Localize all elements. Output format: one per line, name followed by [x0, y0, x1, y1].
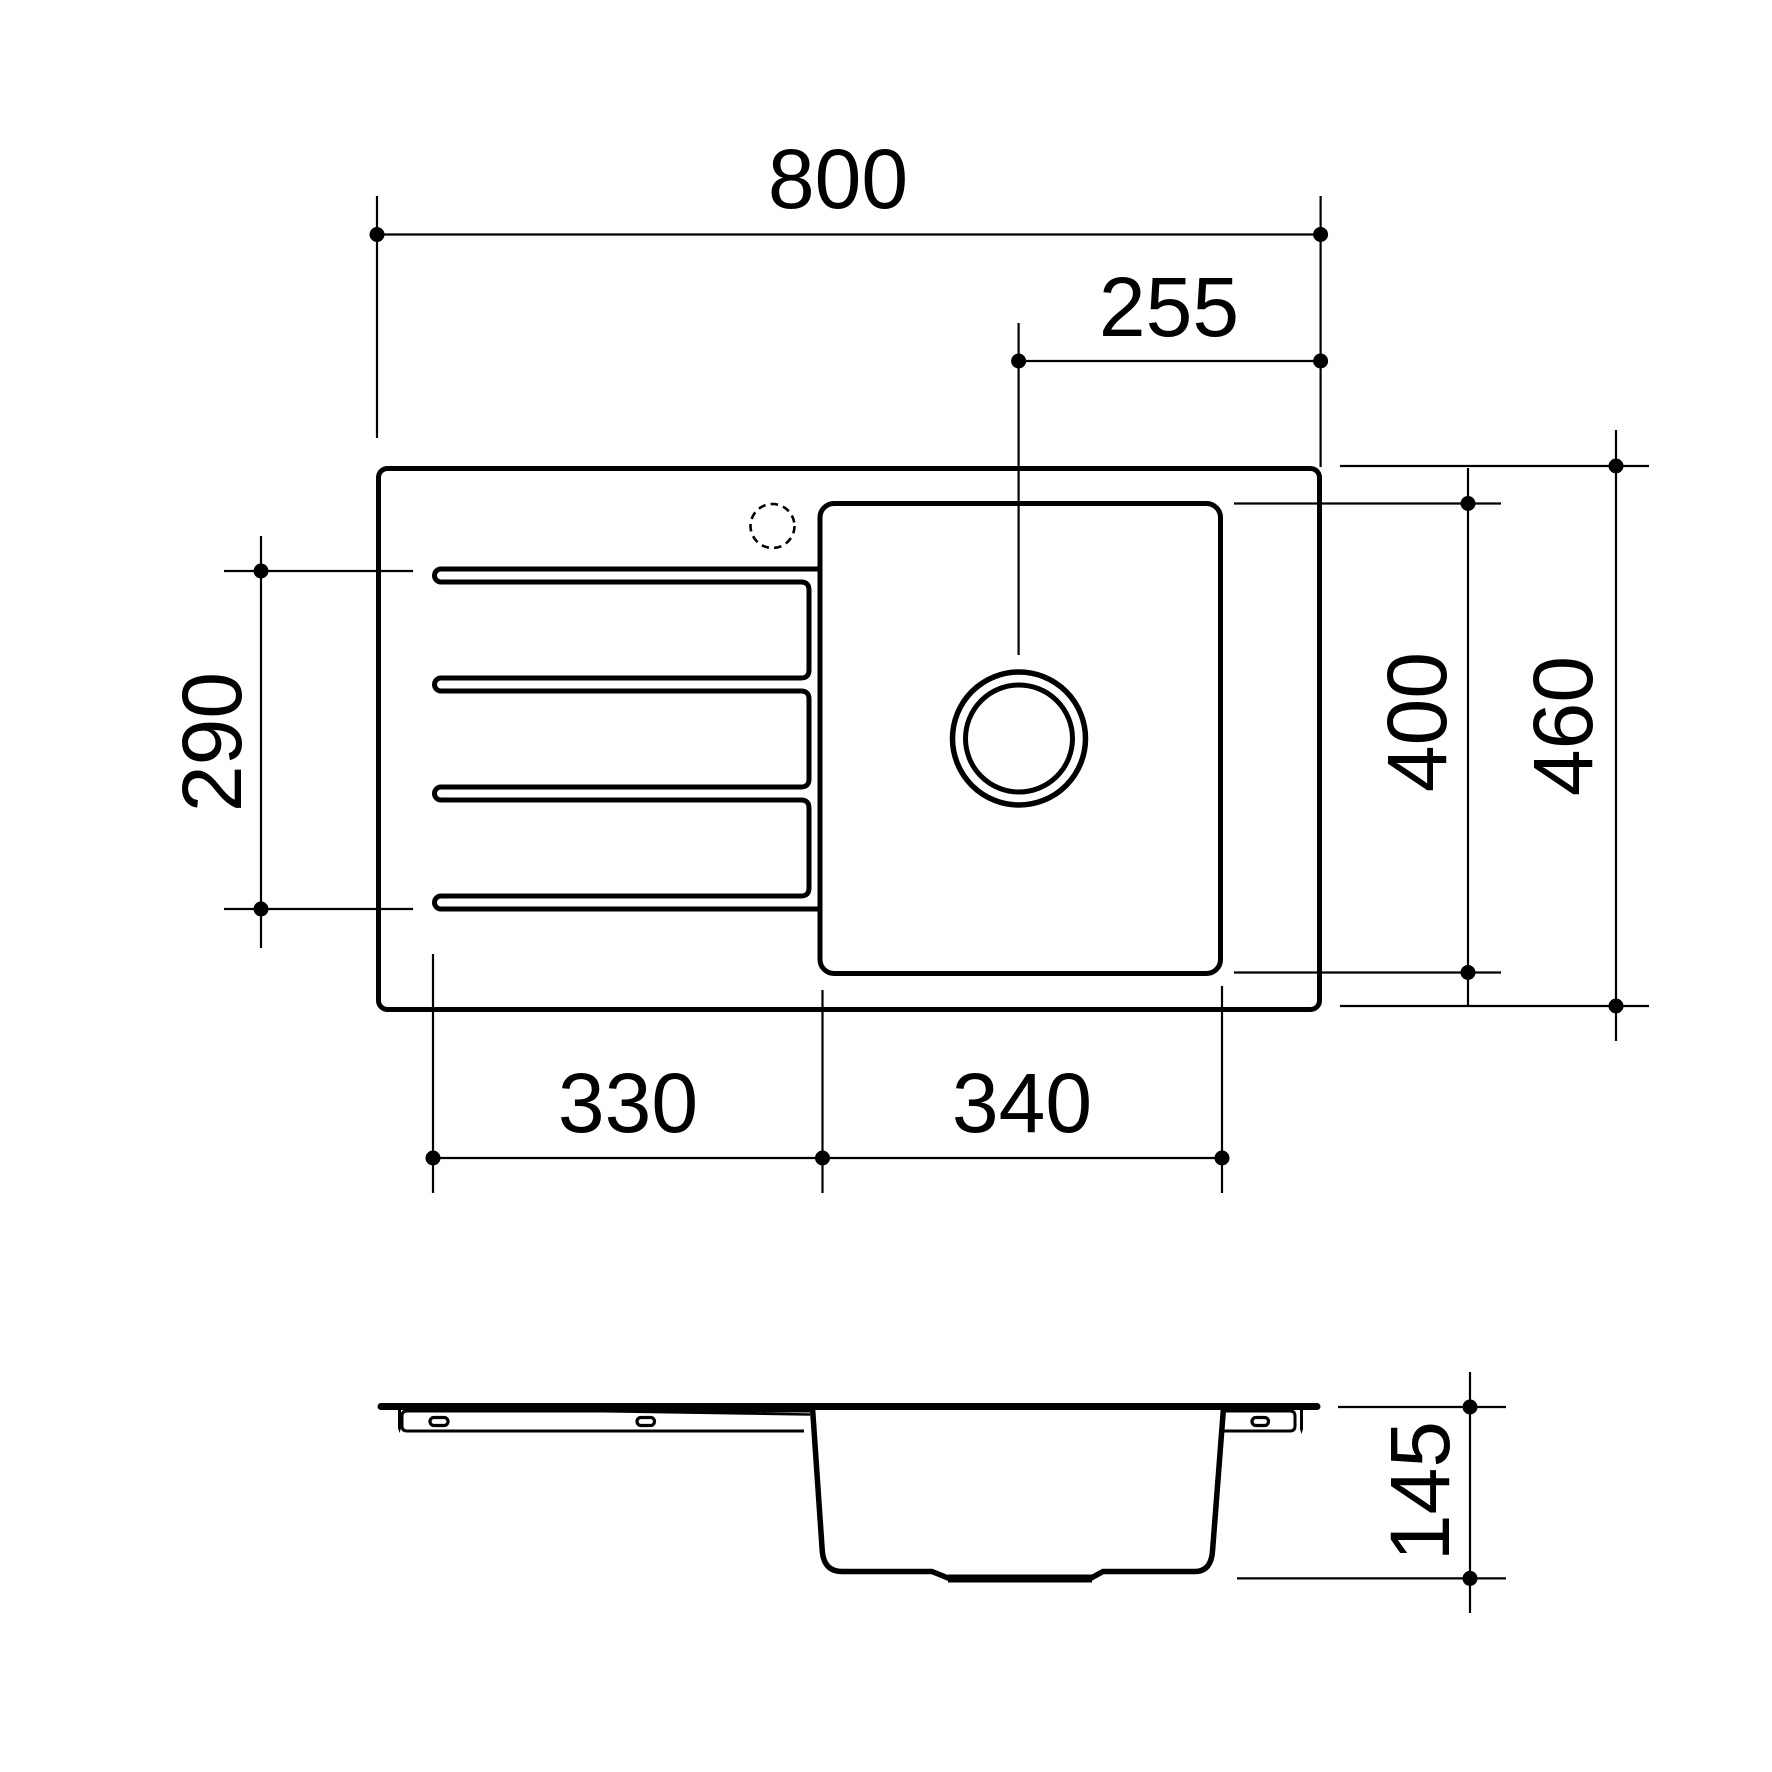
svg-text:460: 460 — [1516, 656, 1610, 796]
svg-text:340: 340 — [952, 1056, 1092, 1150]
svg-text:330: 330 — [558, 1056, 698, 1150]
svg-text:400: 400 — [1370, 652, 1464, 792]
svg-text:255: 255 — [1099, 260, 1239, 354]
svg-text:290: 290 — [165, 672, 259, 812]
svg-text:800: 800 — [768, 132, 908, 226]
svg-text:145: 145 — [1373, 1421, 1467, 1561]
